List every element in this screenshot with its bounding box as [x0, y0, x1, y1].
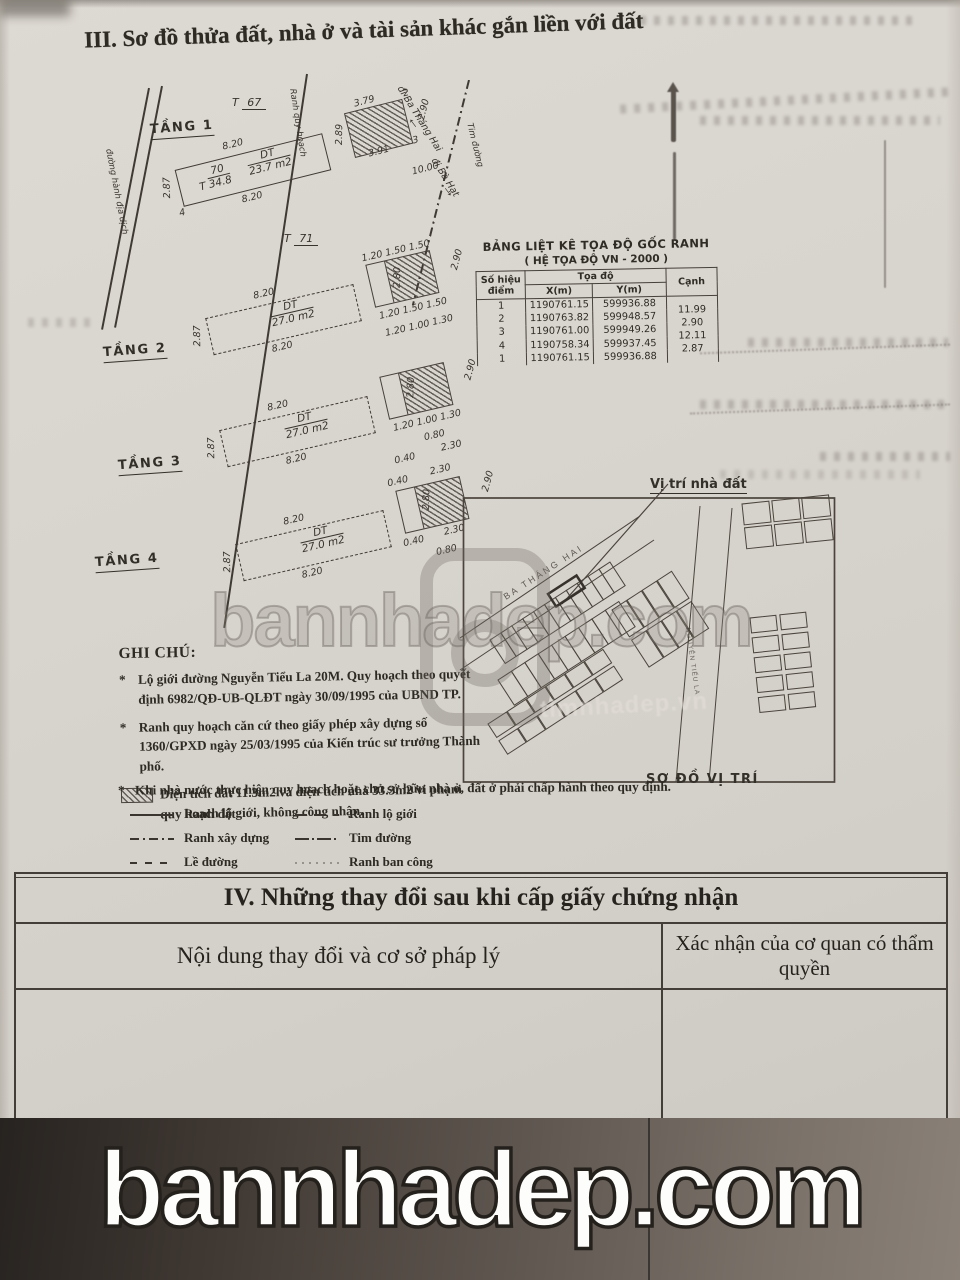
section4-col2-header: Xác nhận của cơ quan có thẩm quyền [663, 924, 946, 988]
legend-item: Ranh đất [130, 806, 285, 822]
col-point-header: Số hiệu điểm [476, 271, 526, 300]
dimension-label: 2.89 [334, 124, 345, 145]
bleed-through-arrow [673, 152, 676, 240]
coordinate-cell: 1190761.00 [526, 325, 593, 339]
bleed-through-artifact [700, 116, 940, 125]
coordinate-cell: 599936.88 [593, 296, 667, 311]
map-parcel [784, 652, 811, 670]
floor4-label: TẦNG 4 [94, 551, 159, 573]
paper-edge-right [946, 0, 960, 1280]
coordinate-table-title: BẢNG LIỆT KÊ TỌA ĐỘ GỐC RANH [475, 236, 717, 254]
dimension-label: 8.20 [285, 451, 308, 466]
coordinate-cell: 599937.45 [593, 336, 667, 351]
coordinate-table: BẢNG LIỆT KÊ TỌA ĐỘ GỐC RANH ( HỆ TỌA ĐỘ… [475, 236, 719, 366]
col-x-header: X(m) [526, 284, 593, 299]
map-parcel [499, 729, 526, 754]
legend-label: Ranh đất [184, 806, 236, 822]
floor2-label: TẦNG 2 [102, 341, 167, 363]
map-parcel [804, 519, 833, 543]
dimension-label: 0.40 [393, 451, 416, 466]
dimension-label: 8.20 [241, 190, 264, 206]
edge-length-value: 2.87 [669, 342, 716, 356]
section3-title: III. Sơ đồ thửa đất, nhà ở và tài sản kh… [84, 4, 745, 53]
map-parcel [772, 498, 801, 522]
coordinate-cell: 2 [477, 312, 527, 326]
dimension-label: 0.80 [423, 428, 446, 443]
map-parcel [595, 666, 622, 691]
left-street-label: đường hành địa dịch [103, 148, 129, 235]
col-edge-header: Cạnh [666, 267, 718, 296]
legend-line-swatch [295, 862, 339, 864]
map-parcel [786, 672, 813, 690]
section4-col1-header: Nội dung thay đổi và cơ sở pháp lý [16, 924, 661, 988]
dimension-label: 2.87 [222, 551, 233, 572]
dimension-label: 8.20 [252, 286, 275, 301]
map-parcel [788, 692, 815, 710]
note-bullet: * [119, 670, 132, 710]
map-parcel [565, 662, 592, 687]
map-parcel [745, 525, 774, 549]
legend-line-swatch [130, 838, 174, 840]
legend-label: Ranh ban công [349, 854, 433, 870]
watermark-big: bannhadep.com [0, 1126, 960, 1251]
coordinate-cell: 599949.26 [593, 323, 667, 338]
dimension-label: 2.90 [449, 248, 465, 271]
coordinate-cell: 599948.57 [593, 310, 667, 325]
watermark-middle: bannhadep.com [198, 578, 764, 663]
legend-item: Ranh ban công [295, 854, 460, 870]
photo-corner-shadow [0, 0, 70, 16]
edge-length-value: 2.90 [669, 316, 716, 330]
dimension-label: 8.20 [282, 512, 305, 527]
legend-item: Ranh xây dựng [130, 830, 285, 846]
legend-label: Tim đường [349, 830, 411, 846]
coordinate-cell: 1190758.34 [526, 338, 593, 352]
edge-length-value: 11.99 [669, 303, 716, 317]
left-street-line [101, 88, 150, 330]
dimension-label: 8.20 [266, 398, 289, 413]
section4-title: IV. Những thay đổi sau khi cấp giấy chứn… [16, 874, 946, 924]
floor3-label: TẦNG 3 [117, 454, 182, 476]
note-item: * Ranh quy hoạch căn cứ theo giấy phép x… [120, 711, 481, 777]
scanned-document-page: III. Sơ đồ thửa đất, nhà ở và tài sản kh… [0, 0, 960, 1280]
dimension-label: 10.00 [411, 160, 440, 177]
legend-line-swatch [130, 862, 174, 864]
dimension-label: 2.80 [405, 377, 417, 399]
bleed-through-arrow [671, 88, 676, 142]
map-parcel [758, 695, 785, 713]
legend-line-swatch [130, 814, 174, 816]
legend-line-swatch [295, 838, 339, 840]
dimension-label: 2.87 [161, 177, 173, 199]
floor1-plan: T 7034.8 DT23.7 m2 8.202.878.2043.7922.8… [149, 74, 485, 252]
legend-line-swatch [295, 814, 339, 816]
dimension-label: 2.90 [416, 98, 432, 121]
bleed-through-artifact [28, 318, 92, 327]
legend-label: Lề đường [184, 854, 238, 870]
dimension-label: 0.40 [402, 534, 425, 549]
coordinate-cell: 1 [476, 299, 526, 314]
dimension-label: 4 [178, 207, 187, 219]
dimension-label: 8.20 [221, 137, 244, 153]
bottom-watermark-band: bannhadep.com [0, 1118, 960, 1280]
coordinate-cell: 599936.88 [593, 350, 667, 365]
legend-label: Ranh xây dựng [184, 830, 269, 846]
coordinate-cell: 1 [477, 352, 527, 366]
dimension-label: 8.20 [271, 339, 294, 354]
note-bullet: * [120, 718, 133, 778]
legend: Ranh đấtRanh lộ giớiRanh xây dựngTim đườ… [130, 806, 460, 870]
bleed-through-artifact [640, 16, 920, 25]
bleed-through-artifact [720, 470, 920, 479]
neighbor-lot-top: T 67 [232, 96, 266, 109]
dimension-label: 2.80 [392, 267, 404, 289]
dimension-label: 2.80 [421, 489, 433, 511]
coordinate-cell: 1190763.82 [526, 311, 593, 325]
coordinate-cell: 1190761.15 [526, 298, 593, 313]
dimension-label: 0.40 [386, 474, 409, 489]
map-parcel [774, 522, 803, 546]
legend-label: Ranh lộ giới [349, 806, 417, 822]
bleed-through-mark [884, 140, 886, 288]
edge-length-value: 12.11 [669, 329, 716, 343]
dimension-label: 3 [411, 134, 420, 146]
legend-item: Tim đường [295, 830, 460, 846]
map-parcel [780, 612, 807, 630]
dimension-label: 2 [402, 87, 411, 99]
coordinate-cell: 3 [477, 326, 527, 340]
bleed-through-artifact [820, 452, 950, 461]
col-y-header: Y(m) [592, 282, 666, 297]
neighbor-lot-bottom: T 71 [284, 232, 318, 245]
edge-length-cell: 11.992.9012.112.87 [666, 295, 718, 362]
paper-edge-top [0, 0, 960, 8]
dimension-label: 2.87 [206, 437, 217, 458]
map-parcel [756, 675, 783, 693]
coordinate-cell: 4 [477, 339, 527, 353]
map-parcel [782, 632, 809, 650]
paper-edge-left [0, 0, 10, 1280]
coordinate-cell: 1190761.15 [527, 351, 594, 365]
dimension-label: 2.87 [192, 325, 203, 346]
map-parcel [742, 501, 771, 525]
note-bullet: * [118, 783, 128, 799]
dimension-label: 2.30 [429, 462, 452, 477]
coordinate-table-subtitle: ( HỆ TỌA ĐỘ VN - 2000 ) [475, 252, 717, 268]
dimension-label: 2.30 [440, 438, 463, 453]
legend-item: Ranh lộ giới [295, 806, 460, 822]
legend-item: Lề đường [130, 854, 285, 870]
